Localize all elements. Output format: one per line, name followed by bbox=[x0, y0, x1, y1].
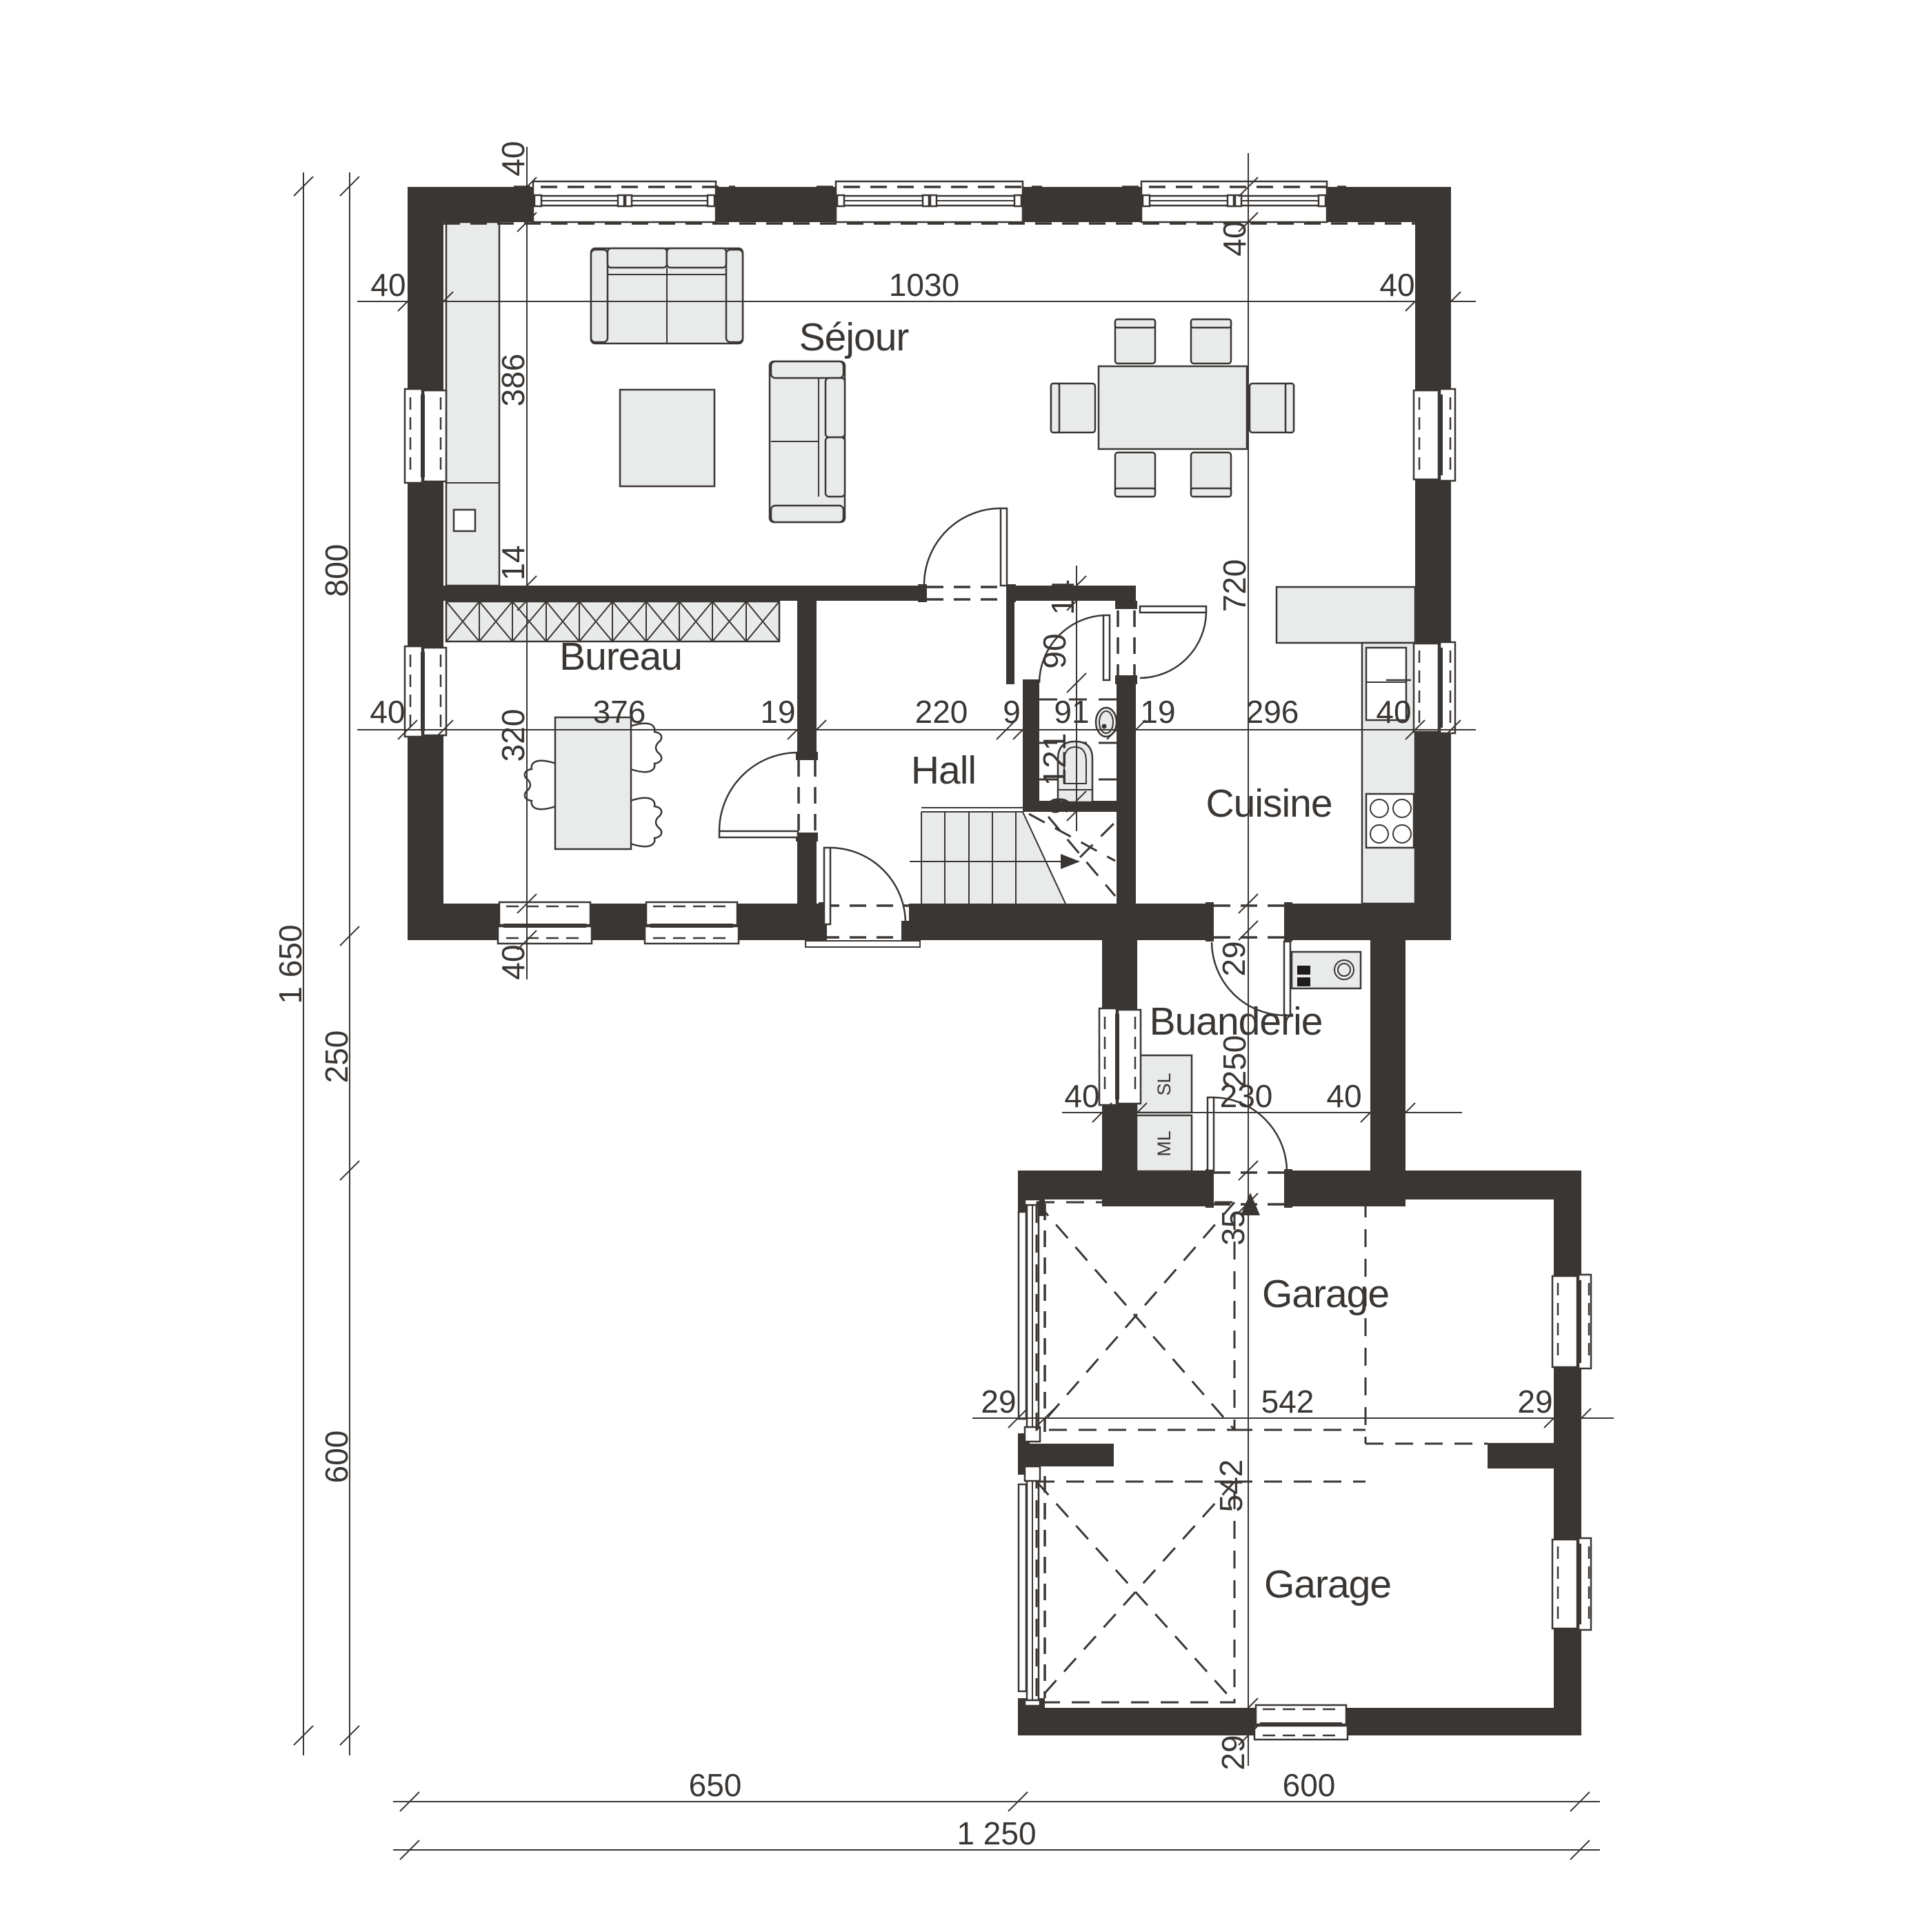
svg-text:600: 600 bbox=[319, 1431, 354, 1484]
svg-text:40: 40 bbox=[495, 944, 531, 979]
svg-text:542: 542 bbox=[1261, 1384, 1314, 1420]
svg-text:542: 542 bbox=[1213, 1460, 1249, 1513]
svg-text:Séjour: Séjour bbox=[799, 315, 910, 359]
svg-text:1 250: 1 250 bbox=[957, 1815, 1036, 1851]
svg-text:1 650: 1 650 bbox=[272, 924, 308, 1004]
svg-text:Garage: Garage bbox=[1262, 1272, 1389, 1316]
svg-text:19: 19 bbox=[760, 694, 795, 730]
svg-text:376: 376 bbox=[593, 694, 646, 730]
svg-text:Bureau: Bureau bbox=[559, 635, 682, 679]
svg-text:40: 40 bbox=[370, 267, 406, 303]
svg-text:220: 220 bbox=[915, 694, 968, 730]
svg-text:29: 29 bbox=[1517, 1384, 1552, 1420]
svg-text:14: 14 bbox=[495, 545, 531, 580]
svg-text:250: 250 bbox=[319, 1030, 354, 1084]
svg-text:ML: ML bbox=[1154, 1131, 1174, 1157]
svg-text:296: 296 bbox=[1246, 694, 1299, 730]
svg-text:Cuisine: Cuisine bbox=[1205, 781, 1332, 826]
svg-text:14: 14 bbox=[1045, 579, 1081, 615]
svg-text:29: 29 bbox=[981, 1384, 1016, 1420]
svg-text:19: 19 bbox=[1140, 694, 1175, 730]
svg-text:650: 650 bbox=[689, 1767, 742, 1803]
svg-text:9: 9 bbox=[1003, 694, 1021, 730]
svg-text:320: 320 bbox=[495, 709, 531, 762]
svg-text:Hall: Hall bbox=[911, 748, 976, 793]
svg-text:40: 40 bbox=[1064, 1078, 1099, 1114]
svg-text:29: 29 bbox=[1215, 1735, 1251, 1770]
svg-text:29: 29 bbox=[1216, 941, 1252, 976]
svg-text:386: 386 bbox=[495, 354, 531, 407]
svg-text:SL: SL bbox=[1154, 1073, 1174, 1095]
svg-text:720: 720 bbox=[1217, 559, 1252, 613]
svg-text:9: 9 bbox=[1041, 797, 1077, 815]
svg-text:40: 40 bbox=[1376, 694, 1411, 730]
svg-text:35: 35 bbox=[1215, 1210, 1251, 1245]
svg-text:Buanderie: Buanderie bbox=[1150, 999, 1323, 1044]
svg-text:121: 121 bbox=[1037, 733, 1072, 786]
svg-text:40: 40 bbox=[1217, 221, 1252, 256]
svg-text:91: 91 bbox=[1054, 694, 1089, 730]
svg-text:600: 600 bbox=[1283, 1767, 1336, 1803]
svg-text:1030: 1030 bbox=[889, 267, 959, 303]
svg-text:90: 90 bbox=[1037, 633, 1072, 668]
svg-text:40: 40 bbox=[495, 141, 531, 176]
svg-text:800: 800 bbox=[319, 544, 354, 597]
svg-text:40: 40 bbox=[370, 694, 405, 730]
svg-text:40: 40 bbox=[1326, 1078, 1361, 1114]
svg-text:40: 40 bbox=[1379, 267, 1414, 303]
svg-text:Garage: Garage bbox=[1264, 1562, 1391, 1606]
